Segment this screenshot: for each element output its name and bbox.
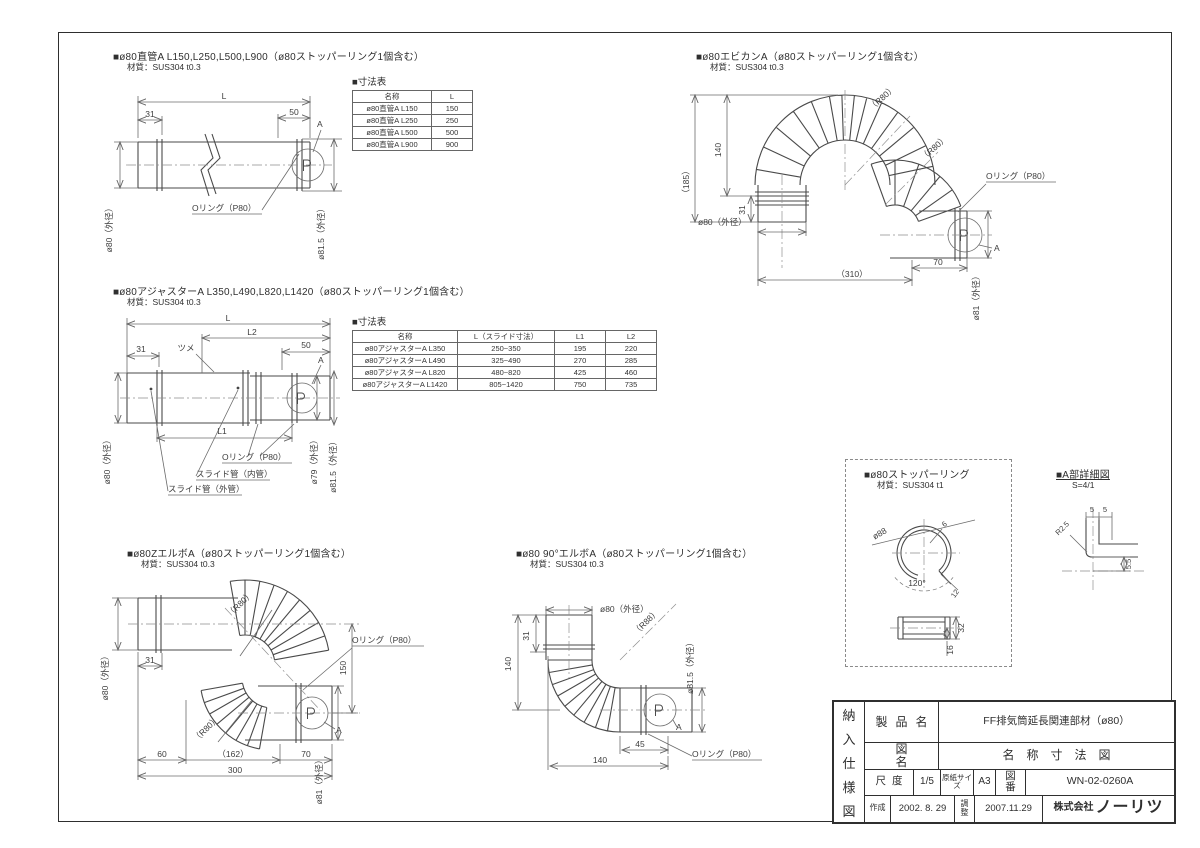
company-name: ノーリツ <box>1095 800 1163 817</box>
dim-label-l1: L1 <box>217 426 227 436</box>
dim-label-50: 50 <box>301 340 311 350</box>
oring-label: Oリング（P80） <box>222 452 286 462</box>
adjuster-drawing: L L2 31 ツメ 50 A L1 Oリング（P80） スライド管（内管） ス… <box>102 313 340 495</box>
dim-label-185: （185） <box>681 166 691 197</box>
table-row: ø80アジャスターA L350250~350195220 <box>353 343 657 355</box>
dim-label-31: 31 <box>521 631 531 641</box>
a-part-detail-drawing: 5 5 R2.5 5.5 <box>1053 505 1144 592</box>
od-label-right: ø81（外径） <box>971 272 981 321</box>
od-label-right: ø81.5（外径） <box>685 638 695 694</box>
dim-label-31: 31 <box>136 344 146 354</box>
dim-label-31: 31 <box>145 655 155 665</box>
table-row: ø80アジャスターA L490325~490270285 <box>353 355 657 367</box>
created-label: 作成 <box>865 795 890 822</box>
section-material-elbow90: 材質：SUS304 t0.3 <box>530 558 604 570</box>
dim-label-31: 31 <box>145 109 155 119</box>
title-block: 納 入 仕 様 図 製品名 FF排気筒延長関連部材（ø80） 図名 名称寸法図 … <box>832 700 1176 824</box>
detail-ref-a: A <box>317 119 323 129</box>
radius-label: （R80） <box>867 83 898 112</box>
elbow90-drawing: ø80（外径） 31 140 （R88） ø81.5（外径） 45 140 Oリ… <box>503 604 762 770</box>
adjuster-dim-table: ■寸法表 名称 L（スライド寸法） L1 L2 ø80アジャスターA L3502… <box>352 314 657 391</box>
table-row: ø80アジャスターA L1420805~1420750735 <box>353 379 657 391</box>
table-row: ø80直管A L150150 <box>353 103 473 115</box>
radius-label: （R80） <box>191 714 221 744</box>
od-label-left: ø80（外径） <box>698 217 747 227</box>
dim-label-70: 70 <box>933 257 943 267</box>
od-label-left: ø80（外径） <box>100 652 110 701</box>
section-material-straight: 材質：SUS304 t0.3 <box>127 61 201 73</box>
dim-label-70: 70 <box>301 749 311 759</box>
dim-label-310: （310） <box>836 269 867 279</box>
od-label-right: ø81（外径） <box>314 756 324 805</box>
dim-label-5b: 5 <box>1103 505 1107 514</box>
created-date: 2002. 8. 29 <box>891 795 954 822</box>
table-row: ø80直管A L900900 <box>353 139 473 151</box>
ebikan-drawing: （R80） （R80） （185） 140 31 ø80（外径） （310） 7… <box>681 83 1056 320</box>
section-material-adjuster: 材質：SUS304 t0.3 <box>127 296 201 308</box>
radius-label: （R80） <box>225 589 255 619</box>
dim-label-300: 300 <box>228 765 242 775</box>
dim-label-140: 140 <box>503 657 513 671</box>
detail-scale-label: S=4/1 <box>1072 480 1094 490</box>
od-label-right: ø81.5（外径） <box>328 437 338 493</box>
dim-label-162: （162） <box>217 749 248 759</box>
drawing-sheet: L 31 50 A Oリング（P80） ø80（外径） ø81.5（外径） <box>0 0 1200 848</box>
detail-ref-a: A <box>336 725 342 735</box>
scale-value: 1/5 <box>914 769 940 795</box>
drawing-name-value: 名称寸法図 <box>939 742 1174 769</box>
drawing-number-value: WN-02-0260A <box>1026 769 1174 795</box>
od-label-mid: ø79（外径） <box>309 436 319 485</box>
section-material-zelbow: 材質：SUS304 t0.3 <box>141 558 215 570</box>
table-header-row: 名称 L <box>353 91 473 103</box>
oring-label: Oリング（P80） <box>352 635 416 645</box>
table-row: ø80直管A L250250 <box>353 115 473 127</box>
oring-label: Oリング（P80） <box>692 749 756 759</box>
paper-size-label: 原紙サイズ <box>941 769 973 795</box>
scale-label: 尺度 <box>865 769 913 795</box>
company-prefix: 株式会社 <box>1053 803 1093 814</box>
company-logo: 株式会社ノーリツ <box>1043 795 1174 822</box>
drawing-name-label: 図名 <box>865 742 938 769</box>
product-name-value: FF排気筒延長関連部材（ø80） <box>939 702 1174 742</box>
dim-label-l: L <box>226 313 231 323</box>
dim-label-l: L <box>222 91 227 101</box>
dim-label-l2: L2 <box>247 327 257 337</box>
oring-label: Oリング（P80） <box>192 203 256 213</box>
dim-label-31: 31 <box>737 205 747 215</box>
radius-label: （R80） <box>919 133 950 162</box>
drawing-number-label: 図番 <box>996 769 1025 795</box>
od-label-right: ø81.5（外径） <box>316 204 326 260</box>
table-row: ø80アジャスターA L820480~820425460 <box>353 367 657 379</box>
od-label-left: ø80（外径） <box>104 204 114 253</box>
detail-ref-a: A <box>676 722 682 732</box>
detail-ref-a: A <box>994 243 1000 253</box>
table-row: ø80直管A L500500 <box>353 127 473 139</box>
table-title: ■寸法表 <box>352 314 657 328</box>
straight-pipe-drawing: L 31 50 A Oリング（P80） ø80（外径） ø81.5（外径） <box>104 91 342 260</box>
section-title-adetail: ■A部詳細図 <box>1056 466 1110 481</box>
straight-dim-table: ■寸法表 名称 L ø80直管A L150150 ø80直管A L250250 … <box>352 74 473 151</box>
od-label-left: ø80（外径） <box>102 436 112 485</box>
radius-label-r25: R2.5 <box>1053 519 1071 537</box>
dim-label-140: 140 <box>713 143 723 157</box>
section-material-ebikan: 材質：SUS304 t0.3 <box>710 61 784 73</box>
dim-label-140b: 140 <box>593 755 607 765</box>
dim-label-45: 45 <box>635 739 645 749</box>
od-label-top: ø80（外径） <box>600 604 649 614</box>
adjusted-date: 2007.11.29 <box>975 795 1042 822</box>
table-title: ■寸法表 <box>352 74 473 88</box>
oring-label: Oリング（P80） <box>986 171 1050 181</box>
product-name-label: 製品名 <box>865 702 938 742</box>
adjusted-label: 調整 <box>955 795 974 822</box>
section-material-stopper: 材質：SUS304 t1 <box>877 479 944 491</box>
dim-label-5a: 5 <box>1090 505 1094 514</box>
doc-type-vertical: 納 入 仕 様 図 <box>834 702 864 822</box>
tab-label: ツメ <box>177 343 194 353</box>
paper-size-value: A3 <box>974 769 995 795</box>
dim-label-150: 150 <box>338 661 348 675</box>
z-elbow-drawing: （R80） （R80） 31 Oリング（P80） 150 ø80（外径） 60 … <box>100 580 424 804</box>
detail-ref-a: A <box>318 355 324 365</box>
dim-label-55: 5.5 <box>1124 559 1133 569</box>
dim-label-50: 50 <box>289 107 299 117</box>
table-header-row: 名称 L（スライド寸法） L1 L2 <box>353 331 657 343</box>
slide-outer-label: スライド管（外管） <box>168 484 245 494</box>
dim-label-60: 60 <box>157 749 167 759</box>
slide-inner-label: スライド管（内管） <box>196 469 273 479</box>
